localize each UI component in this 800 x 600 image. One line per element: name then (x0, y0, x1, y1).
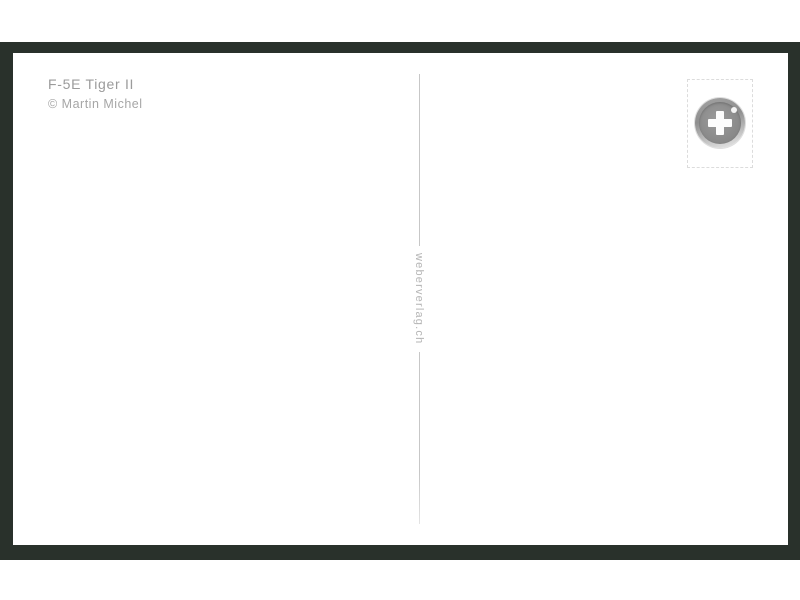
postcard-title: F-5E Tiger II (48, 76, 134, 92)
publisher-url-text: weberverlag.ch (413, 253, 425, 344)
swiss-cross-icon (708, 119, 732, 127)
postcard-frame: F-5E Tiger II © Martin Michel weberverla… (0, 42, 800, 560)
address-divider: weberverlag.ch (411, 74, 427, 524)
stamp-box (687, 79, 753, 168)
postcard-card: F-5E Tiger II © Martin Michel weberverla… (13, 53, 788, 545)
publisher-logo-icon (695, 98, 745, 148)
divider-line-top (419, 74, 420, 246)
photo-credit: © Martin Michel (48, 97, 143, 111)
logo-highlight-dot (731, 107, 737, 113)
postcard-back: F-5E Tiger II © Martin Michel weberverla… (0, 0, 800, 600)
divider-line-bottom (419, 352, 420, 524)
